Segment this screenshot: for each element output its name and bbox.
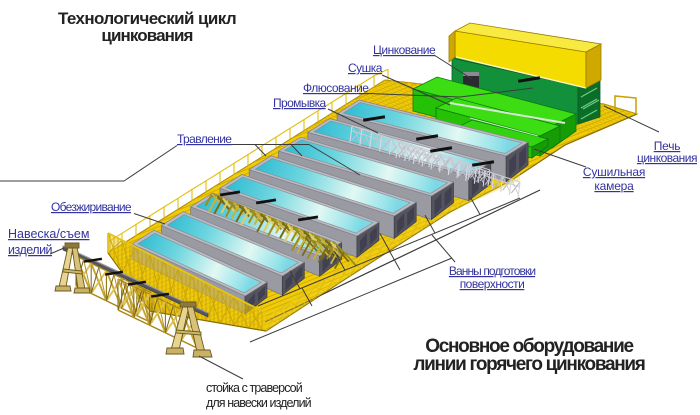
svg-text:изделий: изделий <box>8 243 53 257</box>
svg-text:поверхности: поверхности <box>460 277 525 291</box>
svg-text:стойка с траверсой: стойка с траверсой <box>206 381 303 395</box>
svg-text:для навески изделий: для навески изделий <box>206 396 312 410</box>
svg-text:Сушильная: Сушильная <box>583 165 645 179</box>
svg-text:Сушка: Сушка <box>348 61 383 75</box>
svg-text:Флюсование: Флюсование <box>303 81 369 95</box>
svg-text:Ванны подготовки: Ванны подготовки <box>449 264 535 278</box>
svg-text:цинкования: цинкования <box>637 151 697 165</box>
svg-text:Обезжиривание: Обезжиривание <box>51 200 132 214</box>
svg-text:линии горячего цинкования: линии горячего цинкования <box>413 354 644 375</box>
svg-text:цинкования: цинкования <box>101 26 192 45</box>
svg-text:Травление: Травление <box>177 132 232 146</box>
svg-text:камера: камера <box>594 179 634 193</box>
svg-text:Цинкование: Цинкование <box>373 43 436 57</box>
svg-text:Промывка: Промывка <box>273 96 327 110</box>
svg-text:Навеска/съем: Навеска/съем <box>8 227 89 241</box>
